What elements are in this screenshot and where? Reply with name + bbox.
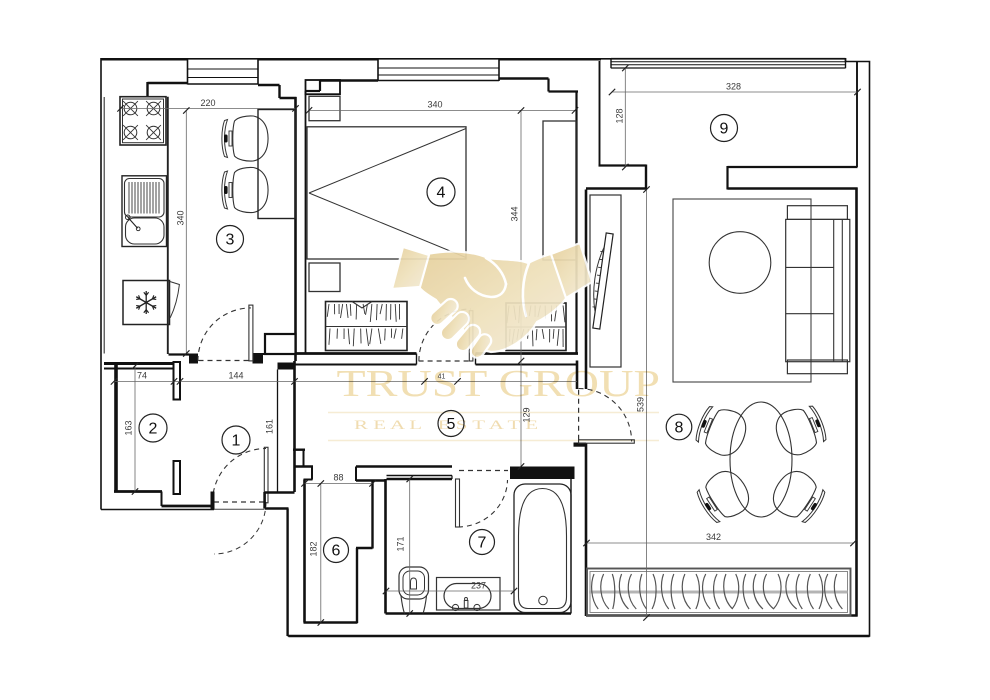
svg-text:163: 163 xyxy=(124,420,134,435)
svg-text:344: 344 xyxy=(510,206,520,221)
svg-text:R E A L E S T A T E: R E A L E S T A T E xyxy=(354,418,539,432)
svg-text:340: 340 xyxy=(176,210,186,225)
svg-text:328: 328 xyxy=(726,82,741,92)
svg-text:340: 340 xyxy=(427,100,442,110)
svg-text:3: 3 xyxy=(226,232,235,249)
svg-text:88: 88 xyxy=(333,473,343,483)
svg-text:TRUST GROUP: TRUST GROUP xyxy=(337,363,661,405)
svg-text:128: 128 xyxy=(615,108,625,123)
svg-text:8: 8 xyxy=(675,420,684,437)
svg-text:237: 237 xyxy=(471,581,486,591)
svg-text:171: 171 xyxy=(396,536,406,551)
svg-text:6: 6 xyxy=(332,543,341,560)
svg-text:161: 161 xyxy=(265,419,275,434)
svg-text:182: 182 xyxy=(309,541,319,556)
svg-text:144: 144 xyxy=(228,371,243,381)
svg-text:7: 7 xyxy=(478,535,487,552)
svg-text:74: 74 xyxy=(137,371,147,381)
svg-text:9: 9 xyxy=(720,121,729,138)
svg-text:220: 220 xyxy=(200,98,215,108)
svg-text:1: 1 xyxy=(232,433,241,450)
svg-text:2: 2 xyxy=(149,421,158,438)
svg-text:342: 342 xyxy=(706,532,721,542)
svg-text:4: 4 xyxy=(437,185,446,202)
